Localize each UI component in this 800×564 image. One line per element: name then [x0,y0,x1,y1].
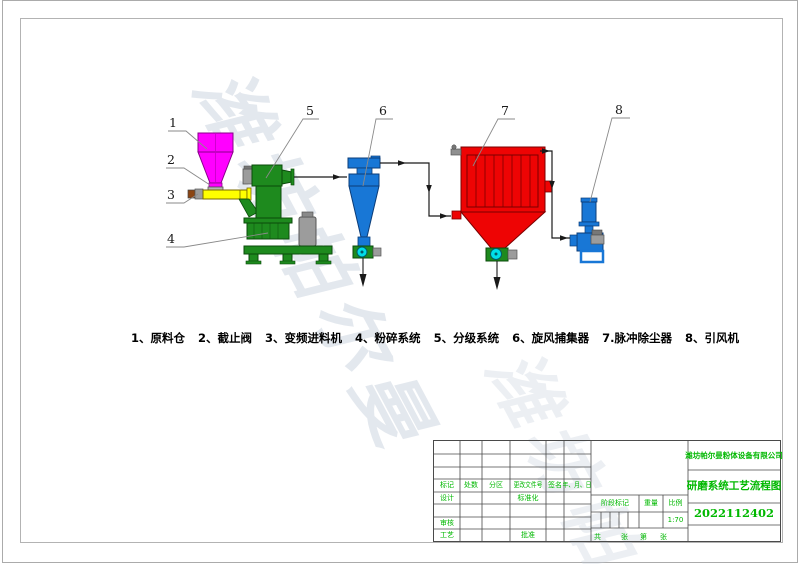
tb-drawing-title: 研磨系统工艺流程图 [688,470,780,503]
mill-and-classifier [243,165,332,264]
raw-material-hopper [198,133,233,187]
legend-item: 7.脉冲除尘器 [602,330,672,346]
collector-rotary-valve [486,248,517,261]
equipment-label-1: 1 [169,117,177,130]
tb-label-count: 处数 [460,479,482,492]
equipment-legend: 1、原料仓 2、截止阀 3、变频进料机 4、粉碎系统 5、分级系统 6、旋风捕集… [131,330,739,346]
tb-sheet-zhang2: 张 [660,532,667,542]
tb-label-scale: 比例 [663,495,688,512]
cyclone-rotary-valve [353,246,381,258]
tb-sheet-no: 第 [640,532,647,542]
legend-item: 3、变频进料机 [265,330,342,346]
tb-label-approve: 批准 [510,529,546,541]
legend-item: 8、引风机 [685,330,739,346]
equipment-label-2: 2 [167,154,175,167]
tb-label-check: 审核 [434,517,460,529]
equipment-label-6: 6 [379,105,387,118]
tb-label-standard: 标准化 [510,492,546,504]
tb-company-name: 潍坊帕尔曼粉体设备有限公司 [688,441,780,470]
title-block: 标记 处数 分区 更改文件号 签名 年、月、日 设计 标准化 审核 工艺 批准 … [433,440,781,542]
tb-label-zone: 分区 [482,479,510,492]
equipment-label-3: 3 [167,189,175,202]
tb-label-sign: 签名 [546,479,564,492]
tb-label-craft: 工艺 [434,529,460,541]
equipment-label-4: 4 [167,233,175,246]
tb-label-weight: 重量 [639,495,663,512]
tb-scale-value: 1:70 [663,512,688,528]
equipment-label-5: 5 [306,105,314,118]
feed-chute [239,199,258,217]
tb-sheet-total: 共 [594,532,601,542]
tb-sheet-zhang: 张 [621,532,628,542]
leader-lines [166,118,630,247]
legend-item: 5、分级系统 [434,330,500,346]
tb-label-stage: 阶段标记 [591,495,639,512]
tb-label-date: 年、月、日 [565,479,590,492]
tb-drawing-number: 2022112402 [688,503,780,525]
legend-item: 2、截止阀 [198,330,252,346]
pulse-dust-collector [451,145,552,290]
legend-item: 4、粉碎系统 [355,330,421,346]
legend-item: 1、原料仓 [131,330,185,346]
induced-draft-fan [570,198,604,262]
equipment-label-7: 7 [501,105,509,118]
equipment-label-8: 8 [615,104,623,117]
tb-label-mark: 标记 [434,479,460,492]
legend-item: 6、旋风捕集器 [512,330,589,346]
tb-label-change-no: 更改文件号 [513,479,543,492]
drawing-sheet: 潍坊帕尔曼 潍坊帕尔曼 [0,0,800,564]
cyclone-separator [348,156,381,287]
tb-label-design: 设计 [434,492,460,504]
